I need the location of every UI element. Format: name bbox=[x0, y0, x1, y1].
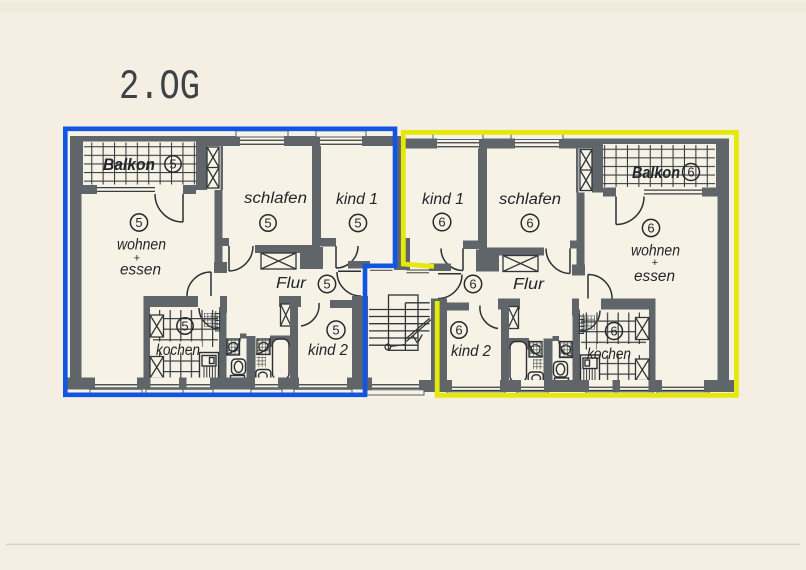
svg-text:5: 5 bbox=[169, 157, 176, 172]
svg-text:6: 6 bbox=[687, 165, 694, 180]
svg-text:6: 6 bbox=[647, 221, 654, 236]
svg-text:kochen: kochen bbox=[156, 342, 200, 359]
svg-text:5: 5 bbox=[264, 216, 271, 231]
svg-text:essen: essen bbox=[634, 268, 675, 285]
svg-text:6: 6 bbox=[610, 324, 617, 339]
svg-text:Balkon: Balkon bbox=[632, 164, 680, 182]
svg-text:wohnen: wohnen bbox=[117, 237, 166, 254]
svg-text:6: 6 bbox=[438, 215, 445, 230]
svg-text:5: 5 bbox=[332, 323, 339, 338]
svg-text:schlafen: schlafen bbox=[244, 190, 307, 207]
svg-text:Flur: Flur bbox=[513, 276, 545, 293]
svg-text:6: 6 bbox=[526, 216, 533, 231]
svg-text:Balkon: Balkon bbox=[103, 156, 155, 174]
svg-text:kind 1: kind 1 bbox=[422, 191, 464, 208]
svg-text:schlafen: schlafen bbox=[499, 191, 561, 208]
svg-text:2.OG: 2.OG bbox=[119, 63, 200, 111]
svg-text:6: 6 bbox=[469, 277, 476, 292]
svg-text:essen: essen bbox=[120, 262, 161, 279]
svg-text:kochen: kochen bbox=[587, 346, 631, 363]
svg-text:kind 2: kind 2 bbox=[451, 343, 491, 360]
svg-text:5: 5 bbox=[354, 216, 361, 231]
svg-text:kind 2: kind 2 bbox=[308, 342, 348, 359]
svg-text:5: 5 bbox=[135, 215, 142, 230]
svg-text:5: 5 bbox=[181, 319, 188, 334]
svg-text:Flur: Flur bbox=[276, 275, 307, 292]
svg-text:5: 5 bbox=[323, 277, 330, 292]
svg-text:kind 1: kind 1 bbox=[336, 191, 378, 208]
svg-text:6: 6 bbox=[455, 323, 462, 338]
